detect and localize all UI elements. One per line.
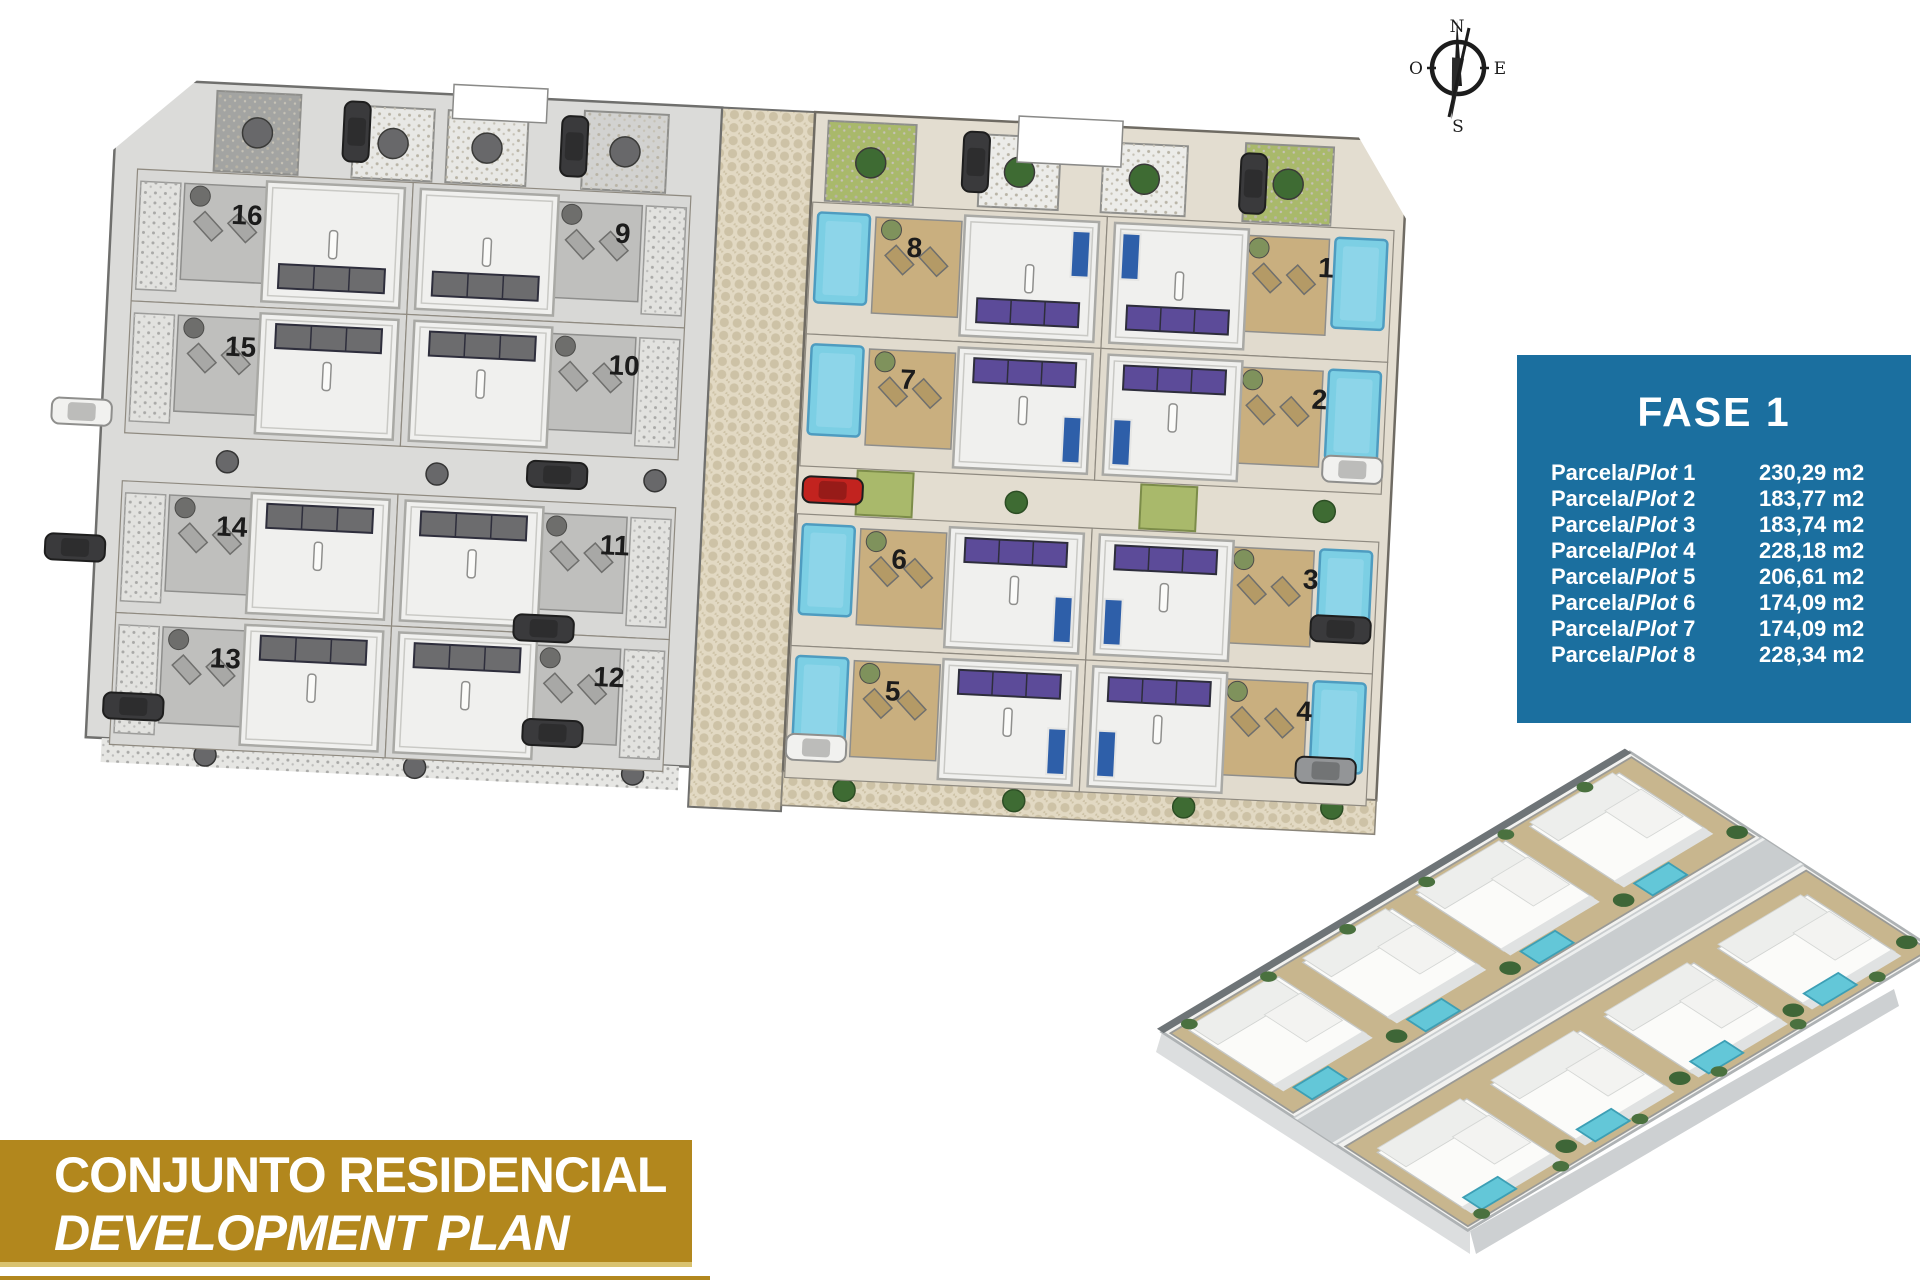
banner-line-english: DEVELOPMENT PLAN [54, 1204, 692, 1262]
roof-panels [429, 332, 536, 361]
tree-icon [643, 469, 666, 492]
solar-panels [1108, 677, 1211, 706]
pool-water [801, 664, 841, 740]
fase-plot-row: Parcela/Plot 7174,09 m2 [1551, 616, 1911, 642]
compass-rose-icon: N S O E [1409, 17, 1506, 137]
tree-icon [1172, 795, 1195, 818]
car-roof [538, 723, 567, 742]
plot-area: 228,18 m2 [1759, 538, 1864, 563]
tree-icon [216, 450, 239, 473]
plot-number-12: 12 [593, 661, 626, 693]
skylight [461, 682, 470, 710]
car-roof [802, 738, 831, 757]
gravel-strip-texture [136, 181, 181, 291]
tree-icon [377, 128, 408, 159]
top-notch [452, 84, 548, 123]
blue-stair [1096, 731, 1116, 778]
tree-icon [183, 318, 204, 339]
skylight [322, 362, 331, 390]
plot-number-1: 1 [1317, 252, 1334, 284]
roof-panels [414, 643, 521, 672]
roof-panels [275, 324, 382, 353]
tree-icon [609, 136, 640, 167]
skylight [1018, 396, 1027, 424]
plot-number-15: 15 [224, 331, 257, 363]
hedge-square [1139, 484, 1197, 531]
tree-icon [561, 204, 582, 225]
plot-number-7: 7 [899, 364, 916, 396]
skylight [1009, 576, 1018, 604]
roof-panels [420, 511, 527, 540]
pool-water [816, 353, 856, 429]
roof-panels [278, 264, 385, 293]
plot-label: Parcela/Plot 5 [1551, 564, 1759, 590]
plot-label: Parcela/Plot 6 [1551, 590, 1759, 616]
skylight [1168, 404, 1177, 432]
blue-stair [1053, 596, 1073, 643]
fase-panel: FASE 1 Parcela/Plot 1230,29 m2Parcela/Pl… [1517, 355, 1911, 723]
roof-panels [432, 272, 539, 301]
banner-line-spanish: CONJUNTO RESIDENCIAL [54, 1146, 692, 1204]
compass-label-west: O [1409, 59, 1423, 79]
gravel-strip-texture [635, 338, 680, 448]
skylight [476, 370, 485, 398]
roof-panels [260, 636, 367, 665]
plot-area: 174,09 m2 [1759, 590, 1864, 615]
gravel-strip-texture [120, 493, 165, 603]
car-roof [818, 481, 847, 500]
plot-label: Parcela/Plot 8 [1551, 642, 1759, 668]
plot-number-3: 3 [1302, 564, 1319, 596]
plot-number-9: 9 [614, 217, 631, 249]
car-roof [543, 465, 572, 484]
pool-water [807, 532, 847, 608]
plot-label: Parcela/Plot 3 [1551, 512, 1759, 538]
skylight [482, 238, 491, 266]
solar-panels [973, 358, 1076, 387]
top-notch [1017, 116, 1123, 167]
solar-panels [1114, 545, 1217, 574]
plot-area: 230,29 m2 [1759, 460, 1864, 485]
tree-icon [1005, 491, 1028, 514]
gravel-strip-texture [641, 206, 686, 316]
fase-plot-row: Parcela/Plot 4228,18 m2 [1551, 538, 1911, 564]
tree-icon [875, 351, 896, 372]
tree-icon [866, 531, 887, 552]
tree-icon [426, 463, 449, 486]
fase-plot-list: Parcela/Plot 1230,29 m2Parcela/Plot 2183… [1551, 460, 1911, 668]
car-roof [966, 148, 985, 177]
tree-icon [859, 663, 880, 684]
car-roof [529, 619, 558, 638]
fase-plot-row: Parcela/Plot 3183,74 m2 [1551, 512, 1911, 538]
car-roof [1311, 761, 1340, 780]
pool-water [1333, 378, 1373, 454]
tree-icon [1313, 500, 1336, 523]
skylight [1159, 584, 1168, 612]
tree-icon [1233, 549, 1254, 570]
blue-stair [1070, 231, 1090, 278]
tree-icon [1129, 164, 1160, 195]
plot-area: 183,74 m2 [1759, 512, 1864, 537]
plot-number-13: 13 [209, 642, 242, 674]
tree-icon [855, 147, 886, 178]
plot-number-6: 6 [891, 543, 908, 575]
blue-stair [1111, 419, 1131, 466]
pool-water [1318, 690, 1358, 766]
site-plan: 16151413910111287651234 [34, 66, 1417, 841]
car-roof [1326, 620, 1355, 639]
plot-number-8: 8 [906, 232, 923, 264]
plot-number-4: 4 [1296, 695, 1313, 727]
tree-icon [471, 132, 502, 163]
plot-number-2: 2 [1311, 384, 1328, 416]
car-roof [61, 538, 90, 557]
fase-plot-row: Parcela/Plot 1230,29 m2 [1551, 460, 1911, 486]
fase-plot-row: Parcela/Plot 2183,77 m2 [1551, 486, 1911, 512]
tree-icon [1242, 369, 1263, 390]
tree-icon [555, 336, 576, 357]
development-plan-page: 16151413910111287651234 N S O E FASE 1 P… [0, 0, 1920, 1280]
solar-panels [976, 298, 1079, 327]
hedge-square [856, 471, 914, 518]
plot-number-5: 5 [884, 675, 901, 707]
compass-label-east: E [1494, 59, 1506, 79]
tree-icon [540, 647, 561, 668]
car-roof [119, 697, 148, 716]
tree-icon [1272, 169, 1303, 200]
blue-stair [1046, 728, 1066, 775]
tree-icon [1227, 681, 1248, 702]
compass-label-north: N [1450, 17, 1465, 37]
roof-panels [266, 504, 373, 533]
skylight [1003, 708, 1012, 736]
plot-area: 228,34 m2 [1759, 642, 1864, 667]
tree-icon [242, 117, 273, 148]
site-plan-group: 16151413910111287651234 [34, 66, 1417, 841]
skylight [1025, 265, 1034, 293]
solar-panels [1123, 365, 1226, 394]
tree-icon [546, 515, 567, 536]
skylight [313, 542, 322, 570]
blue-stair [1120, 233, 1140, 280]
plot-area: 206,61 m2 [1759, 564, 1864, 589]
fase-plot-row: Parcela/Plot 8228,34 m2 [1551, 642, 1911, 668]
solar-panels [958, 670, 1061, 699]
development-banner: CONJUNTO RESIDENCIAL DEVELOPMENT PLAN [0, 1140, 692, 1267]
plot-label: Parcela/Plot 7 [1551, 616, 1759, 642]
plot-number-11: 11 [599, 529, 630, 561]
plot-number-14: 14 [215, 510, 248, 543]
tree-icon [168, 629, 189, 650]
car-roof [1244, 169, 1263, 198]
gravel-strip-texture [129, 313, 174, 423]
tree-icon [175, 497, 196, 518]
gravel-strip-texture [619, 649, 664, 759]
plot-area: 174,09 m2 [1759, 616, 1864, 641]
tree-icon [190, 186, 211, 207]
fase-title: FASE 1 [1517, 389, 1911, 436]
car-roof [347, 117, 366, 146]
pool-water [822, 221, 862, 297]
plot-label: Parcela/Plot 2 [1551, 486, 1759, 512]
skylight [307, 674, 316, 702]
gravel-strip-texture [626, 518, 671, 628]
skylight [467, 550, 476, 578]
blue-stair [1061, 417, 1081, 464]
tree-icon [833, 779, 856, 802]
tree-icon [1002, 789, 1025, 812]
car-roof [1338, 460, 1367, 479]
skylight [1153, 715, 1162, 743]
solar-panels [1126, 306, 1229, 335]
solar-panels [964, 538, 1067, 567]
plot-label: Parcela/Plot 4 [1551, 538, 1759, 564]
banner-bottom-strip [0, 1276, 710, 1280]
tree-icon [1249, 237, 1270, 258]
compass-label-south: S [1452, 117, 1464, 137]
blue-stair [1102, 599, 1122, 646]
pool-water [1340, 246, 1380, 322]
skylight [1174, 272, 1183, 300]
fase-plot-row: Parcela/Plot 6174,09 m2 [1551, 590, 1911, 616]
tree-icon [881, 219, 902, 240]
car-roof [67, 402, 96, 421]
plot-number-16: 16 [231, 199, 264, 231]
fase-plot-row: Parcela/Plot 5206,61 m2 [1551, 564, 1911, 590]
skylight [328, 231, 337, 259]
plot-area: 183,77 m2 [1759, 486, 1864, 511]
plot-number-10: 10 [608, 349, 641, 381]
car-roof [565, 132, 584, 161]
plot-label: Parcela/Plot 1 [1551, 460, 1759, 486]
